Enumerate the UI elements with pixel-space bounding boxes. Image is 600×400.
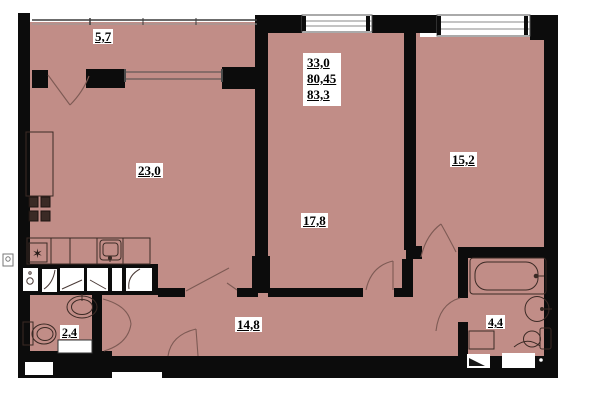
balcony-wall-seg2 (86, 69, 125, 88)
outer-wall-right (544, 33, 558, 378)
bathroom-top-wall (458, 247, 548, 258)
hall-top-wall-a (158, 288, 185, 297)
bathroom-left-wall-lower (458, 322, 468, 358)
area-label-hall: 14,8 (235, 317, 262, 332)
area-label-living-kitchen: 23,0 (136, 163, 163, 178)
top-wall-pier (372, 15, 437, 33)
wall-center-right-stub (406, 246, 422, 259)
hall-top-wall-c (268, 288, 363, 297)
summary-living-area: 33,0 (307, 55, 336, 71)
window-room-center (302, 15, 372, 32)
bathtub-faucet (534, 274, 538, 278)
wall-center-right (404, 33, 416, 250)
wardrobe-cell-3 (87, 268, 108, 291)
balcony-wall-seg1 (32, 70, 48, 88)
wall-living-center (255, 15, 268, 293)
area-label-room-center: 17,8 (301, 213, 328, 228)
summary-total-area: 83,3 (307, 87, 336, 103)
area-label-balcony: 5,7 (93, 29, 113, 44)
bath-basin-faucet (541, 308, 544, 311)
niche-bottom-left (25, 362, 53, 375)
wall-living-center-foot (252, 256, 270, 293)
hob-star-icon: ✶ (32, 247, 43, 262)
shower-tray-icon (58, 340, 92, 353)
area-label-wc: 2,4 (60, 325, 79, 339)
hall-top-wall-b (237, 288, 258, 297)
apartment-summary: 33,0 80,45 83,3 (303, 53, 341, 106)
bathroom-left-wall-upper (458, 258, 468, 298)
entrance-porch (112, 372, 162, 388)
summary-apartment-area: 80,45 (307, 71, 336, 87)
wardrobe-niches (23, 268, 152, 292)
wardrobe-cell-4 (112, 268, 122, 291)
kitchen-faucet (108, 256, 111, 259)
plan-drawing: ✶ (0, 0, 600, 400)
floor-plan: ✶ (0, 0, 600, 400)
balcony-wall-seg3 (222, 67, 257, 89)
outside-duct-box (3, 254, 13, 266)
hall-top-wall-d (394, 288, 413, 297)
area-label-bathroom: 4,4 (486, 315, 505, 329)
niche-bottom-right (502, 353, 535, 368)
wardrobe-cell-2 (60, 268, 84, 291)
area-label-room-right: 15,2 (450, 152, 477, 167)
shaft-dot (539, 358, 543, 362)
window-room-right (437, 15, 530, 36)
